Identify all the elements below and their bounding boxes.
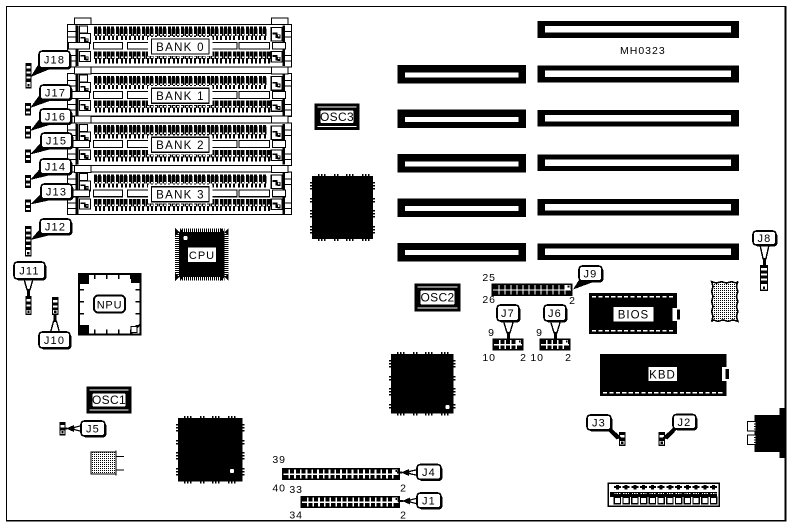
svg-text:10: 10 — [482, 352, 496, 364]
svg-text:J13: J13 — [46, 187, 67, 199]
svg-text:BANK 2: BANK 2 — [156, 140, 205, 152]
svg-text:39: 39 — [272, 454, 286, 466]
svg-text:J17: J17 — [45, 87, 66, 99]
svg-text:CPU: CPU — [189, 250, 215, 262]
svg-text:2: 2 — [569, 295, 575, 307]
svg-text:BANK 1: BANK 1 — [156, 91, 205, 103]
svg-text:J5: J5 — [86, 424, 100, 436]
svg-text:2: 2 — [400, 483, 406, 495]
svg-text:J2: J2 — [677, 417, 691, 429]
svg-text:J9: J9 — [583, 269, 597, 281]
svg-text:BANK 0: BANK 0 — [156, 42, 205, 54]
svg-text:10: 10 — [530, 352, 544, 364]
svg-text:40: 40 — [272, 483, 286, 495]
svg-text:9: 9 — [488, 327, 494, 339]
svg-text:OSC2: OSC2 — [421, 291, 455, 305]
svg-text:9: 9 — [536, 327, 542, 339]
svg-text:KBD: KBD — [649, 369, 676, 381]
svg-text:NPU: NPU — [97, 299, 123, 311]
svg-text:J3: J3 — [592, 418, 606, 430]
svg-text:J12: J12 — [45, 222, 66, 234]
svg-text:J8: J8 — [757, 233, 771, 245]
svg-text:J6: J6 — [548, 308, 562, 320]
svg-text:OSC1: OSC1 — [92, 393, 126, 407]
svg-text:2: 2 — [565, 352, 571, 364]
svg-text:J15: J15 — [46, 136, 67, 148]
svg-text:33: 33 — [289, 484, 303, 496]
svg-text:25: 25 — [482, 272, 496, 284]
svg-text:34: 34 — [289, 510, 303, 522]
svg-text:2: 2 — [400, 510, 406, 522]
svg-text:BIOS: BIOS — [618, 310, 649, 322]
svg-text:OSC3: OSC3 — [320, 110, 354, 124]
svg-text:J10: J10 — [44, 335, 65, 347]
svg-text:MH0323: MH0323 — [620, 45, 666, 57]
svg-text:J7: J7 — [501, 308, 515, 320]
svg-text:J14: J14 — [45, 162, 66, 174]
svg-text:J18: J18 — [44, 55, 65, 67]
svg-text:J4: J4 — [422, 467, 436, 479]
svg-text:26: 26 — [482, 294, 496, 306]
svg-text:J11: J11 — [19, 266, 40, 278]
svg-text:BANK 3: BANK 3 — [156, 189, 205, 201]
svg-text:2: 2 — [520, 352, 526, 364]
svg-text:J16: J16 — [45, 111, 66, 123]
svg-text:J1: J1 — [422, 496, 436, 508]
